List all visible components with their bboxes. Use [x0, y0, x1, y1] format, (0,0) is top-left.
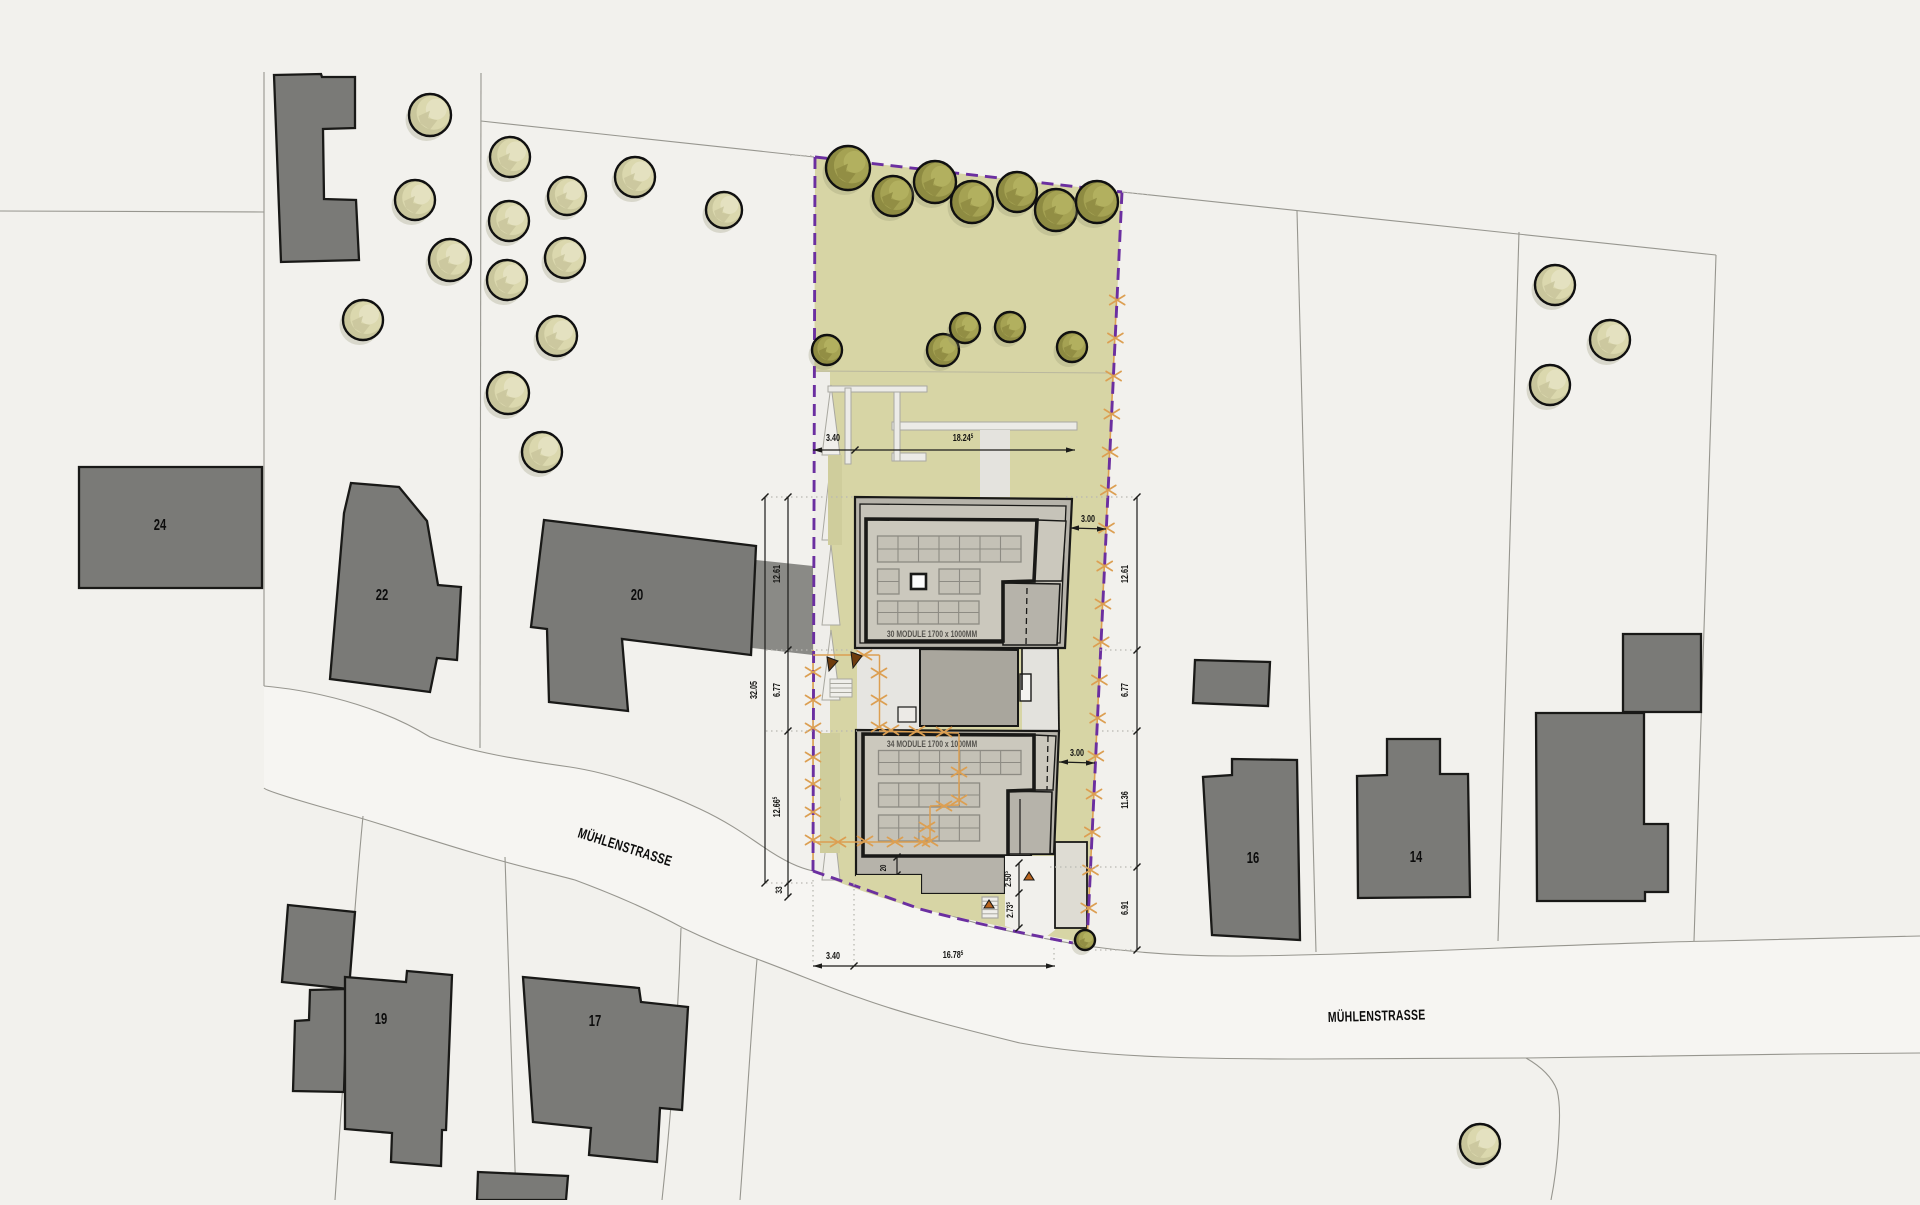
svg-text:19: 19 [375, 1009, 388, 1028]
svg-text:3.00: 3.00 [1070, 747, 1084, 758]
svg-text:24: 24 [154, 515, 167, 534]
svg-text:32.05: 32.05 [748, 681, 759, 699]
svg-text:12.61: 12.61 [771, 565, 782, 583]
svg-text:3.00: 3.00 [1081, 513, 1095, 524]
svg-text:20: 20 [878, 865, 888, 872]
svg-text:16.785: 16.785 [943, 949, 963, 960]
svg-text:16: 16 [1247, 848, 1260, 867]
svg-text:11.36: 11.36 [1119, 791, 1130, 809]
svg-text:6.91: 6.91 [1119, 901, 1130, 915]
svg-text:6.77: 6.77 [771, 683, 782, 697]
svg-text:12.665: 12.665 [771, 797, 782, 817]
svg-text:3.40: 3.40 [826, 950, 840, 961]
svg-text:17: 17 [589, 1011, 602, 1030]
svg-text:33: 33 [774, 886, 784, 894]
svg-text:30 MODULE 1700 x 1000MM: 30 MODULE 1700 x 1000MM [887, 629, 977, 639]
svg-text:12.61: 12.61 [1119, 565, 1130, 583]
svg-text:20: 20 [631, 585, 644, 604]
svg-text:22: 22 [376, 585, 389, 604]
svg-text:14: 14 [1410, 847, 1423, 866]
svg-text:3.40: 3.40 [826, 432, 840, 443]
svg-text:34 MODULE 1700 x 1000MM: 34 MODULE 1700 x 1000MM [887, 739, 977, 749]
svg-text:MÜHLENSTRASSE: MÜHLENSTRASSE [1328, 1006, 1426, 1026]
svg-text:6.77: 6.77 [1119, 683, 1130, 697]
svg-text:18.245: 18.245 [953, 432, 973, 443]
